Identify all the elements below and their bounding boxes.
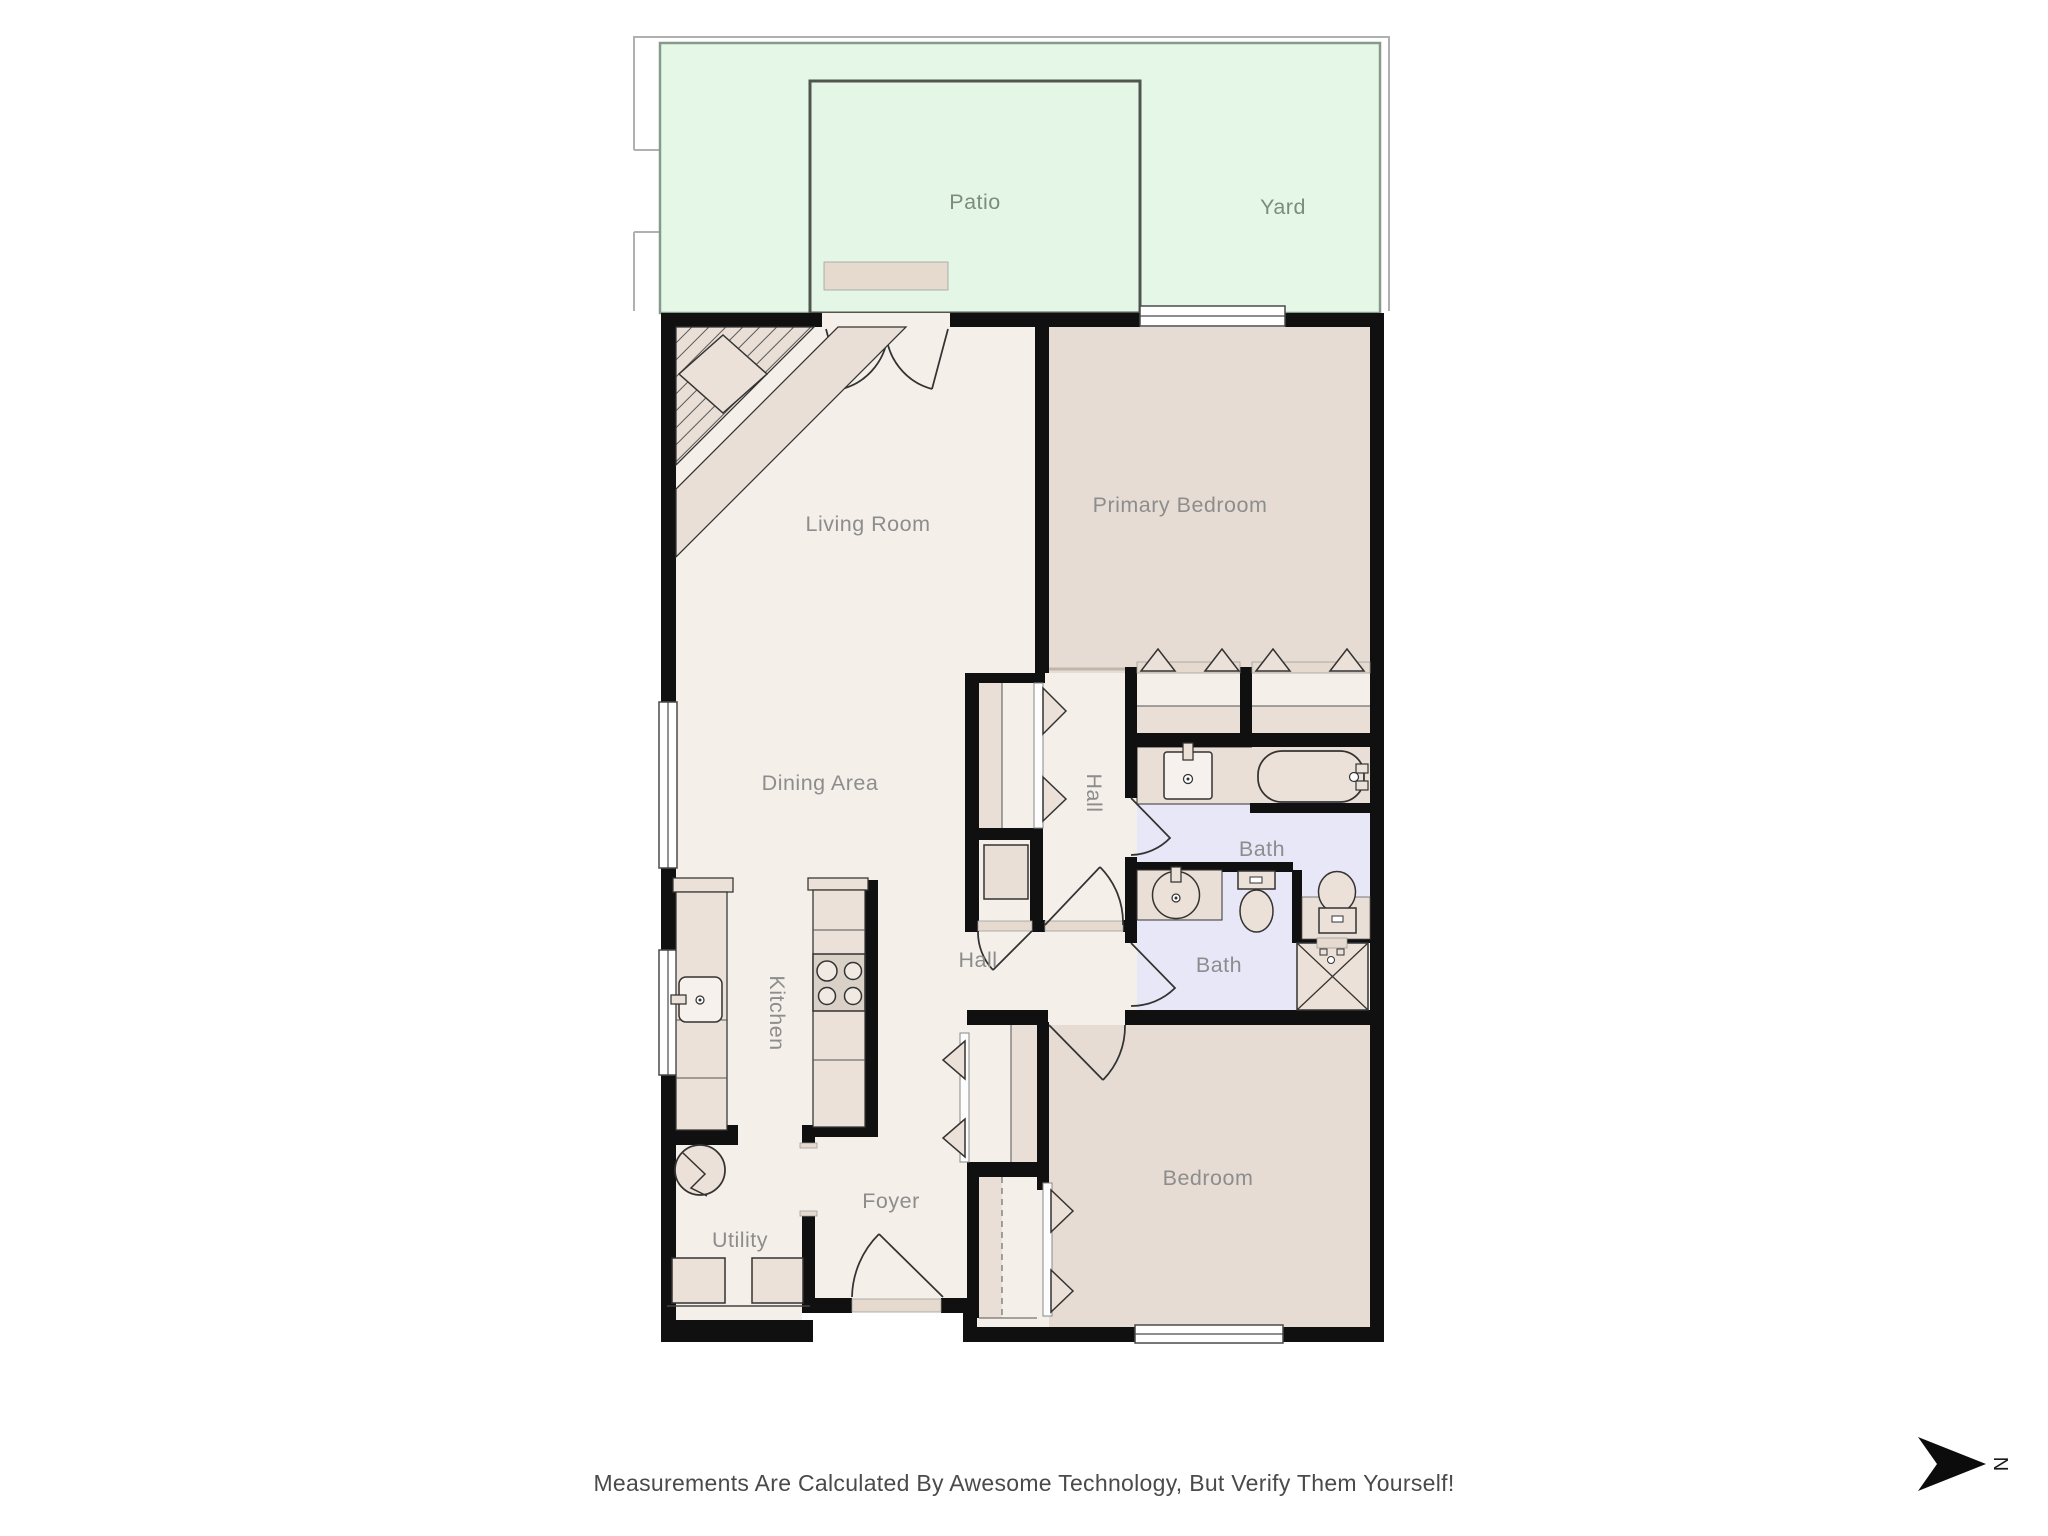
wall	[967, 1177, 979, 1318]
bath-lower-label: Bath	[1196, 953, 1242, 977]
faucet	[1183, 743, 1193, 760]
patio-door-opening	[822, 313, 950, 327]
foyer-closet-shelf	[1011, 1025, 1037, 1162]
foyer-label: Foyer	[862, 1189, 919, 1213]
floorplan-page: Patio Yard Living Room Primary Bedroom D…	[0, 0, 2048, 1536]
wall	[865, 880, 878, 1137]
tub-spout	[1350, 773, 1359, 782]
wall	[661, 1320, 813, 1342]
wall	[1250, 803, 1370, 813]
window-primary-bedroom	[1140, 306, 1285, 326]
wall	[1032, 920, 1045, 932]
wall	[1292, 870, 1302, 943]
closet-door-threshold	[978, 921, 1032, 931]
hall-closet-shelf	[979, 683, 1002, 828]
counter-cap	[673, 878, 733, 892]
kitchen-faucet	[671, 995, 686, 1004]
window-bedroom	[1135, 1325, 1283, 1343]
hall-closet-track	[1034, 683, 1043, 828]
window-kitchen	[659, 950, 677, 1075]
bathtub	[1258, 751, 1364, 802]
shower-drain	[1328, 957, 1335, 964]
entry-door-threshold	[852, 1299, 941, 1312]
floorplan-canvas: Patio Yard Living Room Primary Bedroom D…	[0, 0, 2048, 1536]
wall	[802, 1125, 815, 1145]
utility-opening-jamb	[800, 1143, 817, 1148]
wall	[965, 673, 979, 932]
utility-opening-jamb	[800, 1211, 817, 1216]
toilet-button	[1332, 916, 1343, 922]
hall-door-threshold	[1045, 921, 1123, 931]
wall	[1030, 840, 1043, 932]
burner	[819, 988, 836, 1005]
utility-cabinet	[672, 1258, 725, 1303]
bedroom-closet-shelf	[979, 1177, 1002, 1318]
drain-dot	[1175, 897, 1178, 900]
wall	[661, 313, 822, 327]
wall	[1125, 1010, 1384, 1025]
north-arrow-icon	[1918, 1437, 1986, 1491]
wall	[963, 1327, 1135, 1342]
wall	[802, 1215, 815, 1313]
burner	[817, 961, 837, 981]
dining-area-label: Dining Area	[762, 771, 879, 795]
primary-bedroom-label: Primary Bedroom	[1093, 493, 1268, 517]
burner	[845, 963, 862, 980]
patio-label: Patio	[949, 190, 1001, 214]
wall	[1370, 313, 1384, 1342]
compass: N	[1918, 1437, 2011, 1491]
north-label: N	[1989, 1457, 2011, 1471]
patio-door-slab	[824, 262, 948, 290]
burner	[845, 988, 862, 1005]
wall	[967, 1010, 1048, 1025]
disclaimer-text: Measurements Are Calculated By Awesome T…	[593, 1470, 1454, 1496]
faucet	[1171, 867, 1181, 882]
wall	[1035, 313, 1049, 673]
counter-cap	[808, 878, 868, 890]
window-dining	[659, 702, 677, 868]
toilet-button	[1250, 877, 1262, 883]
shower-head	[1317, 938, 1347, 948]
wall	[1240, 667, 1252, 743]
bedroom-label: Bedroom	[1163, 1166, 1254, 1190]
utility-opening	[802, 1147, 815, 1213]
living-room-label: Living Room	[806, 512, 931, 536]
exterior-notch	[813, 1313, 963, 1343]
outdoor-area	[634, 37, 1389, 313]
storage-closet-shelf	[984, 845, 1028, 899]
closet-a-shelf	[1137, 706, 1240, 733]
wall	[967, 1162, 1049, 1177]
kitchen-label: Kitchen	[765, 975, 789, 1050]
wall	[965, 828, 1043, 840]
tub-faucet	[1356, 764, 1368, 773]
wall	[1125, 733, 1384, 747]
drain-dot	[1187, 778, 1190, 781]
utility-label: Utility	[712, 1228, 768, 1252]
utility-cabinet	[752, 1258, 803, 1303]
kitchen-drain-dot	[699, 999, 702, 1002]
hall-lower-label: Hall	[958, 948, 997, 972]
toilet-bowl	[1240, 890, 1273, 932]
wall	[1283, 1327, 1384, 1342]
yard-label: Yard	[1260, 195, 1306, 219]
shower-knob	[1337, 949, 1344, 955]
closet-b-shelf	[1252, 706, 1370, 733]
wall	[1285, 313, 1384, 327]
shower-knob	[1320, 949, 1327, 955]
toilet-bowl	[1319, 872, 1356, 913]
wall	[1125, 667, 1137, 798]
bath-upper-label: Bath	[1239, 837, 1285, 861]
hall-upper-label: Hall	[1082, 773, 1106, 812]
tub-faucet	[1356, 781, 1368, 790]
wall	[661, 313, 676, 702]
